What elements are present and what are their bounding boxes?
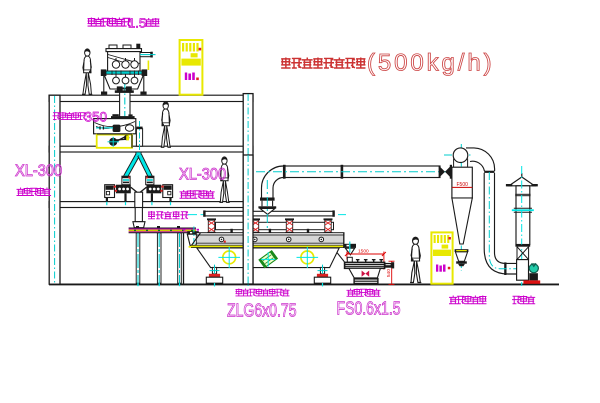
svg-text:XL-300: XL-300 [15,162,62,180]
svg-text:FS0.6x1.5: FS0.6x1.5 [337,299,401,319]
svg-text:350: 350 [85,110,108,125]
svg-text:540: 540 [386,269,392,277]
svg-text:(500kg/h): (500kg/h) [367,50,495,77]
svg-text:1500: 1500 [358,248,369,254]
svg-text:XL-300: XL-300 [179,166,226,184]
svg-text:F500: F500 [457,182,469,188]
svg-text:ZLG6x0.75: ZLG6x0.75 [227,301,297,321]
svg-text:1.5: 1.5 [128,16,146,31]
